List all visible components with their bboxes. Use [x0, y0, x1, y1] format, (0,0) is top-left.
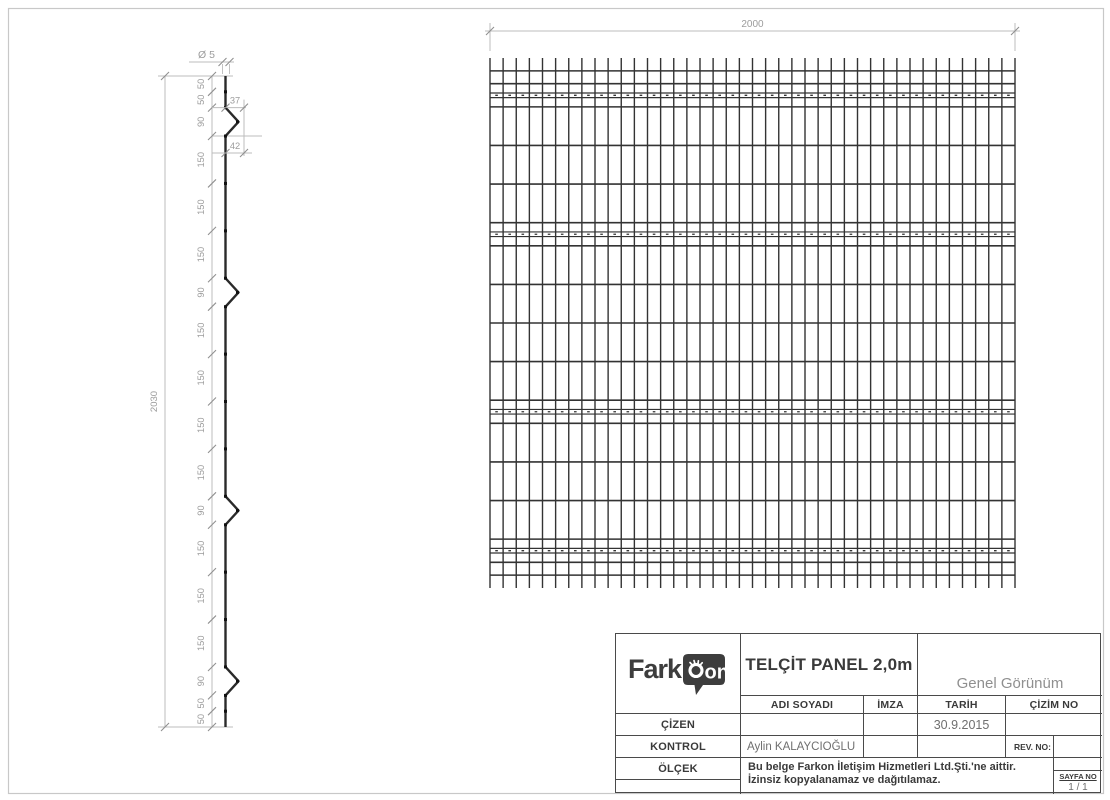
svg-text:2030: 2030	[149, 391, 160, 412]
sayfa-no-label: SAYFA NO	[1059, 772, 1096, 781]
logo-bubble-icon: on	[682, 652, 728, 696]
svg-text:90: 90	[196, 676, 206, 686]
wire-diameter-dimension: Ø 5	[189, 49, 234, 74]
svg-text:150: 150	[196, 370, 206, 386]
overall-height-dimension: 2030	[149, 72, 169, 731]
copyright-line1: Bu belge Farkon İletişim Hizmetleri Ltd.…	[748, 761, 1053, 774]
olcek-value-cell	[616, 780, 741, 794]
svg-text:50: 50	[196, 698, 206, 708]
copyright-line2: İzinsiz kopyalanamaz ve dağıtılamaz.	[748, 774, 1053, 787]
svg-text:150: 150	[196, 541, 206, 557]
bend-width-dimension-42: 42	[212, 141, 252, 157]
profile-dimension-chain: 5050901501501509015015015015090150150150…	[196, 72, 216, 731]
spare-cell	[1054, 758, 1102, 771]
svg-text:on: on	[705, 661, 729, 683]
svg-text:150: 150	[196, 247, 206, 263]
wire-junction-dots	[224, 90, 239, 712]
panel-width-dimension: 2000	[485, 19, 1020, 51]
sayfa-no-value: 1 / 1	[1068, 782, 1087, 793]
kontrol-adi-value: Aylin KALAYCIOĞLU	[741, 736, 864, 758]
farkon-logo: Fark on	[628, 652, 728, 696]
col-header-cizim-no: ÇİZİM NO	[1006, 696, 1102, 714]
profile-wire	[226, 76, 239, 727]
logo-cell: Fark on	[616, 634, 741, 714]
col-header-imza: İMZA	[864, 696, 918, 714]
svg-text:90: 90	[196, 287, 206, 297]
profile-view: 2030505090150150150901501501501509015015…	[149, 49, 262, 731]
svg-text:50: 50	[196, 95, 206, 105]
logo-word: Fark	[628, 652, 681, 686]
svg-text:Ø 5: Ø 5	[198, 49, 215, 61]
svg-text:150: 150	[196, 323, 206, 339]
svg-text:150: 150	[196, 635, 206, 651]
view-name: Genel Görünüm	[918, 634, 1102, 696]
row-label-cizen: ÇİZEN	[616, 714, 741, 736]
drawing-sheet: 2030505090150150150901501501501509015015…	[0, 0, 1110, 800]
col-header-adi-soyadi: ADI SOYADI	[741, 696, 864, 714]
svg-text:42: 42	[230, 141, 240, 151]
rev-no-label: REV. NO:	[1006, 736, 1054, 758]
cizen-tarih-value: 30.9.2015	[918, 714, 1006, 736]
svg-text:50: 50	[196, 714, 206, 724]
svg-text:90: 90	[196, 117, 206, 127]
svg-text:2000: 2000	[741, 19, 764, 30]
drawing-title: TELÇİT PANEL 2,0m	[741, 634, 918, 696]
svg-text:150: 150	[196, 417, 206, 433]
cizen-imza-cell	[864, 714, 918, 736]
title-block: Fark on TELÇİT PANEL 2,0m Genel Görünüm …	[615, 633, 1101, 793]
cizen-adi-cell	[741, 714, 864, 736]
page-number-cell: SAYFA NO 1 / 1	[1054, 771, 1102, 794]
svg-text:37: 37	[230, 96, 240, 106]
row-label-olcek: ÖLÇEK	[616, 758, 741, 780]
svg-text:50: 50	[196, 79, 206, 89]
copyright-note: Bu belge Farkon İletişim Hizmetleri Ltd.…	[741, 758, 1054, 794]
svg-text:150: 150	[196, 152, 206, 168]
kontrol-tarih-cell	[918, 736, 1006, 758]
panel-front-view	[490, 58, 1015, 588]
svg-text:150: 150	[196, 199, 206, 215]
rev-no-value-cell	[1054, 736, 1102, 758]
svg-text:150: 150	[196, 588, 206, 604]
svg-text:90: 90	[196, 505, 206, 515]
col-header-tarih: TARİH	[918, 696, 1006, 714]
cizen-cizimno-cell	[1006, 714, 1102, 736]
bend-depth-dimension-37: 37	[212, 96, 248, 112]
svg-text:150: 150	[196, 465, 206, 481]
row-label-kontrol: KONTROL	[616, 736, 741, 758]
kontrol-imza-cell	[864, 736, 918, 758]
